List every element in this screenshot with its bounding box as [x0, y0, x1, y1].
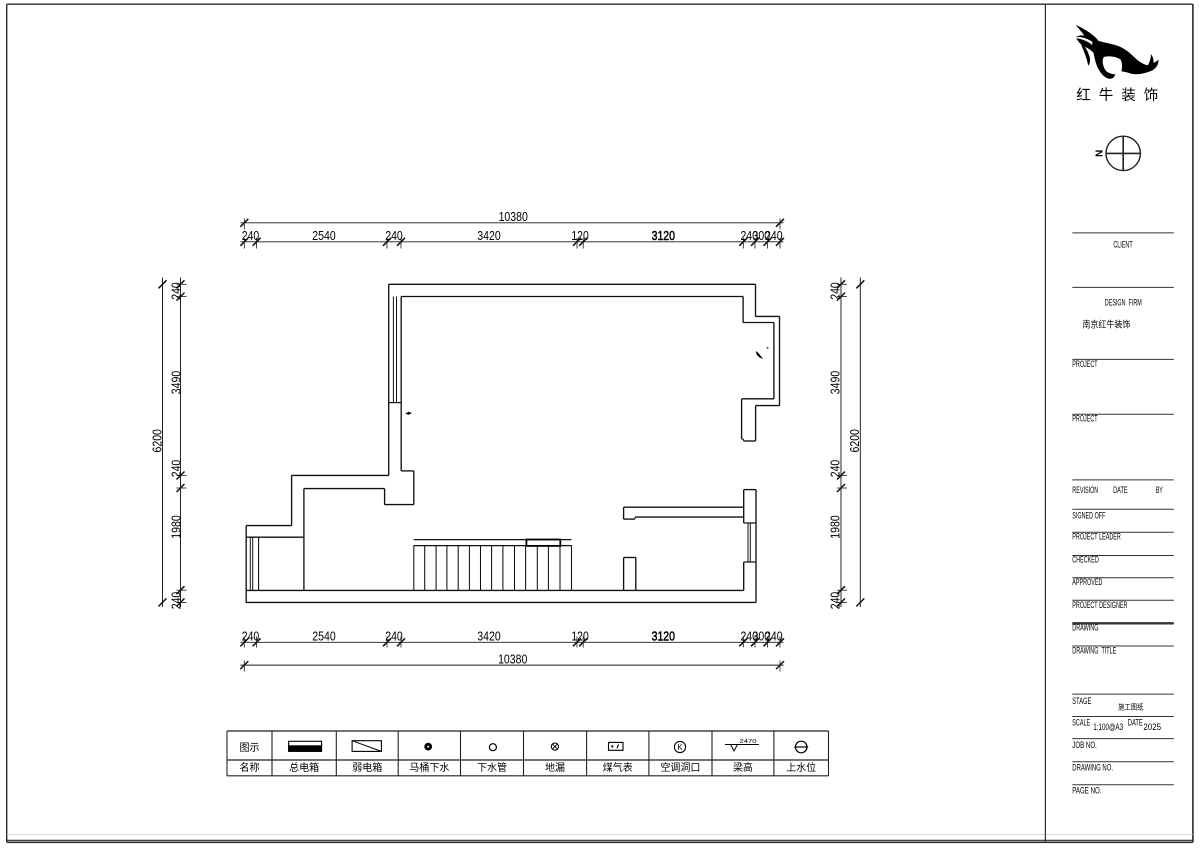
svg-text:APPROVED: APPROVED	[1072, 577, 1102, 587]
svg-text:STAGE: STAGE	[1072, 696, 1091, 706]
svg-text:120: 120	[571, 229, 589, 243]
svg-text:上水位: 上水位	[786, 761, 816, 774]
svg-text:图示: 图示	[240, 742, 260, 754]
svg-text:REVISION: REVISION	[1072, 485, 1098, 495]
svg-text:1:100@A3: 1:100@A3	[1093, 722, 1123, 733]
svg-text:240: 240	[242, 229, 260, 243]
svg-text:1980: 1980	[829, 515, 843, 538]
svg-text:DATE: DATE	[1113, 485, 1128, 495]
svg-text:下水管: 下水管	[477, 761, 507, 774]
svg-text:PROJECT LEADER: PROJECT LEADER	[1072, 531, 1121, 541]
svg-text:CHECKED: CHECKED	[1072, 555, 1099, 565]
svg-text:3490: 3490	[169, 371, 183, 394]
svg-text:3420: 3420	[477, 630, 500, 644]
svg-text:总电箱: 总电箱	[289, 761, 319, 774]
svg-text:DATE: DATE	[1128, 717, 1143, 727]
svg-text:240: 240	[169, 592, 183, 610]
svg-text:红: 红	[1076, 87, 1091, 104]
svg-text:3120: 3120	[652, 229, 675, 243]
svg-text:240: 240	[765, 229, 783, 243]
svg-text:3490: 3490	[829, 371, 843, 394]
svg-text:SCALE: SCALE	[1072, 718, 1090, 728]
svg-text:120: 120	[571, 630, 589, 644]
svg-text:施工图纸: 施工图纸	[1118, 702, 1143, 711]
svg-text:DRAWING: DRAWING	[1072, 623, 1098, 633]
svg-text:1980: 1980	[169, 515, 183, 538]
svg-text:240: 240	[385, 630, 403, 644]
svg-text:PROJECT: PROJECT	[1072, 359, 1098, 369]
svg-text:10380: 10380	[499, 210, 528, 224]
svg-text:N: N	[1092, 150, 1103, 157]
svg-text:PROJECT DESIGNER: PROJECT DESIGNER	[1072, 600, 1127, 610]
svg-text:空调洞口: 空调洞口	[660, 761, 700, 774]
svg-text:BY: BY	[1156, 485, 1163, 495]
svg-text:240: 240	[385, 229, 403, 243]
svg-text:SIGNED OFF: SIGNED OFF	[1072, 511, 1105, 521]
svg-text:名称: 名称	[240, 761, 260, 774]
svg-text:K: K	[677, 743, 683, 752]
svg-text:弱电箱: 弱电箱	[352, 761, 382, 774]
svg-text:DESIGN FIRM: DESIGN FIRM	[1105, 298, 1142, 308]
svg-text:马桶下水: 马桶下水	[409, 761, 449, 774]
svg-text:DRAWING NO.: DRAWING NO.	[1072, 763, 1113, 773]
svg-text:饰: 饰	[1144, 87, 1159, 104]
svg-text:240: 240	[242, 630, 260, 644]
svg-text:2025: 2025	[1143, 722, 1161, 733]
svg-text:南京红牛装饰: 南京红牛装饰	[1082, 319, 1130, 330]
svg-text:2540: 2540	[312, 229, 335, 243]
svg-text:2470: 2470	[740, 739, 757, 745]
svg-text:240: 240	[829, 592, 843, 610]
svg-text:3420: 3420	[477, 229, 500, 243]
svg-text:PROJECT: PROJECT	[1072, 414, 1098, 424]
svg-text:240: 240	[169, 460, 183, 478]
svg-text:JOB NO.: JOB NO.	[1072, 740, 1097, 750]
svg-text:3120: 3120	[652, 630, 675, 644]
svg-text:10380: 10380	[498, 653, 527, 667]
svg-text:6200: 6200	[848, 429, 862, 452]
svg-text:PAGE NO.: PAGE NO.	[1072, 786, 1101, 796]
svg-text:240: 240	[829, 460, 843, 478]
svg-text:6200: 6200	[150, 429, 164, 452]
svg-text:牛: 牛	[1099, 87, 1114, 104]
svg-text:240: 240	[169, 282, 183, 300]
svg-text:煤气表: 煤气表	[603, 761, 633, 774]
svg-text:2540: 2540	[312, 630, 335, 644]
svg-text:地漏: 地漏	[545, 761, 565, 774]
svg-text:CLIENT: CLIENT	[1113, 240, 1133, 250]
svg-text:梁高: 梁高	[733, 761, 753, 774]
svg-text:装: 装	[1121, 87, 1136, 104]
svg-text:240: 240	[829, 282, 843, 300]
svg-text:DRAWING TITLE: DRAWING TITLE	[1072, 646, 1116, 656]
svg-text:240: 240	[765, 630, 783, 644]
